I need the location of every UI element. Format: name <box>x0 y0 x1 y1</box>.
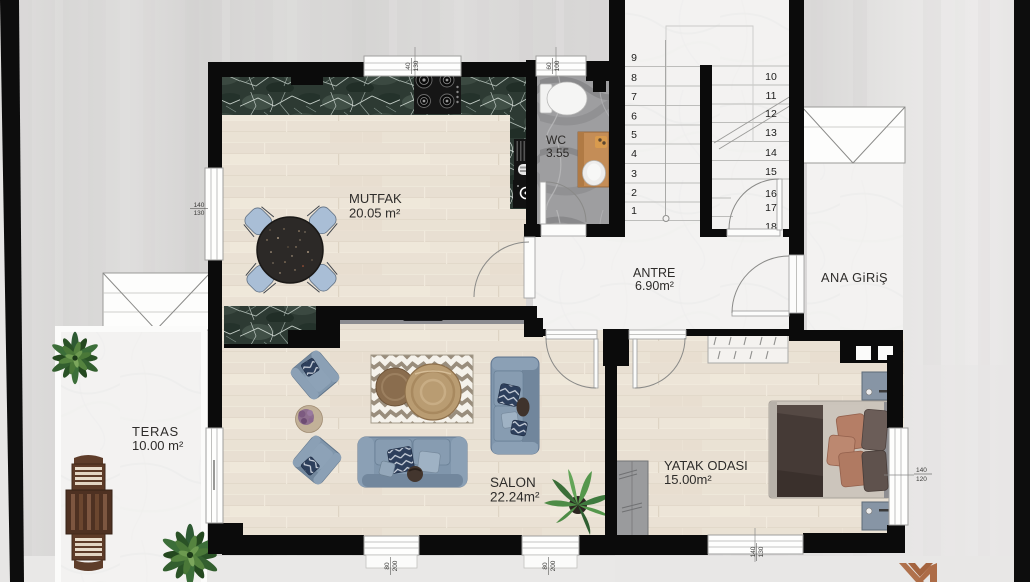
svg-text:16: 16 <box>765 188 777 200</box>
svg-text:10.00 m²: 10.00 m² <box>132 438 184 453</box>
svg-text:14: 14 <box>765 147 777 159</box>
svg-text:100: 100 <box>554 60 561 71</box>
svg-text:130: 130 <box>413 60 420 71</box>
svg-text:200: 200 <box>550 560 557 571</box>
svg-text:80: 80 <box>384 562 391 570</box>
svg-text:3.55: 3.55 <box>546 146 570 160</box>
svg-text:17: 17 <box>765 202 777 214</box>
svg-text:20.05 m²: 20.05 m² <box>349 206 401 221</box>
svg-text:15: 15 <box>765 166 777 178</box>
svg-text:10: 10 <box>765 71 777 83</box>
svg-text:9: 9 <box>631 52 637 64</box>
svg-text:120: 120 <box>916 476 927 483</box>
svg-text:130: 130 <box>194 210 205 217</box>
svg-text:6: 6 <box>631 111 637 123</box>
svg-text:12: 12 <box>765 108 777 120</box>
svg-text:ANA GiRiŞ: ANA GiRiŞ <box>821 270 888 285</box>
svg-text:140: 140 <box>194 202 205 209</box>
svg-text:3: 3 <box>631 168 637 180</box>
svg-text:140: 140 <box>750 546 757 557</box>
svg-text:2: 2 <box>631 187 637 199</box>
svg-text:5: 5 <box>631 129 637 141</box>
svg-text:22.24m²: 22.24m² <box>490 490 540 505</box>
svg-text:MUTFAK: MUTFAK <box>349 191 402 206</box>
svg-text:YATAK ODASI: YATAK ODASI <box>664 458 748 473</box>
svg-text:7: 7 <box>631 91 637 103</box>
svg-text:140: 140 <box>916 467 927 474</box>
svg-text:TERAS: TERAS <box>132 424 179 439</box>
svg-text:13: 13 <box>765 127 777 139</box>
svg-text:SALON: SALON <box>490 475 536 490</box>
svg-text:1: 1 <box>631 205 637 217</box>
svg-text:6.90m²: 6.90m² <box>635 279 674 293</box>
svg-text:60: 60 <box>546 62 553 70</box>
svg-text:4: 4 <box>631 148 637 160</box>
svg-text:WC: WC <box>546 133 566 147</box>
svg-text:8: 8 <box>631 72 637 84</box>
svg-text:ANTRE: ANTRE <box>633 266 675 280</box>
svg-text:15.00m²: 15.00m² <box>664 472 712 487</box>
svg-text:200: 200 <box>392 560 399 571</box>
svg-text:80: 80 <box>542 562 549 570</box>
svg-text:11: 11 <box>766 90 777 102</box>
svg-text:130: 130 <box>758 546 765 557</box>
svg-text:40: 40 <box>405 62 412 70</box>
